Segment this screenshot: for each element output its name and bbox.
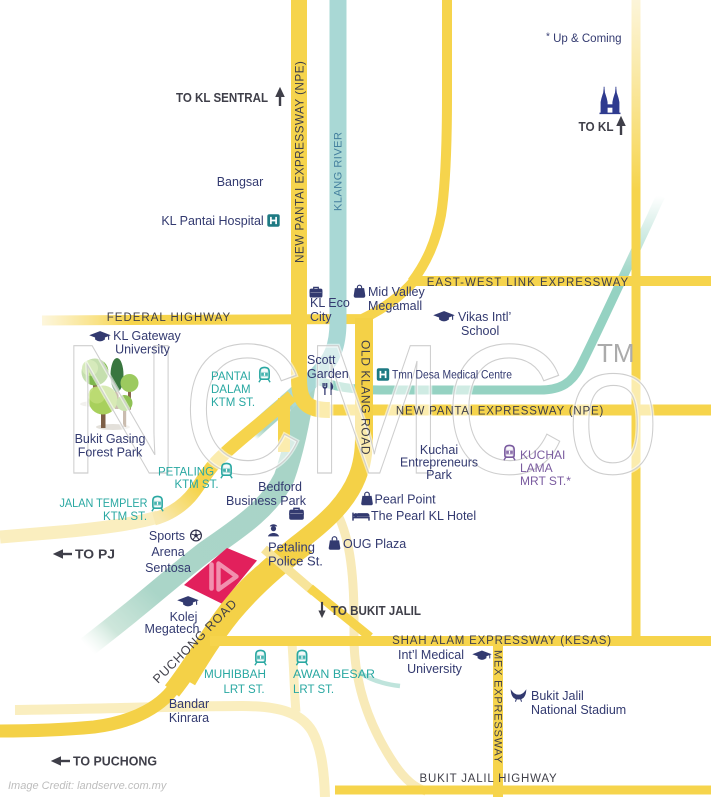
svg-text:KTM ST.: KTM ST. [103,511,147,523]
svg-text:KTM ST.: KTM ST. [174,479,218,491]
svg-text:PETALING: PETALING [158,467,214,479]
svg-text:Sports: Sports [149,529,185,543]
svg-text:KL Pantai Hospital: KL Pantai Hospital [161,214,263,228]
svg-text:Scott: Scott [307,353,336,367]
svg-text:LRT ST.: LRT ST. [293,684,334,696]
svg-text:City: City [310,310,332,324]
svg-text:KTM ST.: KTM ST. [211,397,255,409]
svg-text:TO PUCHONG: TO PUCHONG [73,755,157,769]
svg-text:MEX EXPRESSWAY: MEX EXPRESSWAY [492,650,504,764]
svg-text:Police St.: Police St. [268,554,323,569]
svg-text:Bedford: Bedford [258,480,302,494]
svg-text:Bandar: Bandar [169,697,209,711]
svg-text:Bangsar: Bangsar [217,175,264,189]
svg-text:MUHIBBAH: MUHIBBAH [204,669,266,681]
svg-text:PANTAI: PANTAI [211,371,251,383]
svg-text:Bukit Jalil: Bukit Jalil [531,689,584,703]
svg-text:TO BUKIT JALIL: TO BUKIT JALIL [331,604,421,618]
svg-text:TO PJ: TO PJ [75,548,115,562]
svg-text:DALAM: DALAM [211,384,251,396]
svg-text:OUG Plaza: OUG Plaza [343,537,406,551]
svg-text:Park: Park [426,468,452,482]
svg-text:National Stadium: National Stadium [531,703,626,717]
svg-text:FEDERAL HIGHWAY: FEDERAL HIGHWAY [107,312,231,324]
svg-text:NEW PANTAI EXPRESSWAY (NPE): NEW PANTAI EXPRESSWAY (NPE) [396,406,604,418]
svg-text:Mid Valley: Mid Valley [368,285,425,299]
svg-text:SHAH ALAM EXPRESSWAY (KESAS): SHAH ALAM EXPRESSWAY (KESAS) [392,635,612,647]
svg-text:Megamall: Megamall [368,299,422,313]
svg-text:Business Park: Business Park [226,494,307,508]
svg-text:Tmn Desa Medical Centre: Tmn Desa Medical Centre [392,368,512,382]
svg-text:MRT ST.*: MRT ST.* [520,474,571,488]
svg-text:Bukit Gasing: Bukit Gasing [75,432,146,446]
svg-text:* Up & Coming: * Up & Coming [546,32,622,46]
svg-text:KL Gateway: KL Gateway [113,329,181,343]
svg-text:JALAN TEMPLER: JALAN TEMPLER [60,498,148,510]
svg-text:TM: TM [597,338,635,368]
svg-text:OLD KLANG ROAD: OLD KLANG ROAD [359,340,373,455]
svg-text:Int’l Medical: Int’l Medical [398,648,464,662]
svg-text:Petaling: Petaling [268,540,315,555]
svg-text:Image Credit: landserve.com.my: Image Credit: landserve.com.my [8,780,168,792]
svg-text:Pearl Point: Pearl Point [375,493,437,507]
svg-text:Sentosa: Sentosa [145,561,191,575]
svg-text:Vikas Intl’: Vikas Intl’ [458,310,511,324]
svg-text:TO KL: TO KL [579,120,614,134]
svg-text:KUCHAI: KUCHAI [520,448,565,462]
svg-text:School: School [461,324,499,338]
svg-text:TO KL SENTRAL: TO KL SENTRAL [176,91,268,105]
svg-text:Garden: Garden [307,367,349,381]
svg-text:EAST-WEST LINK EXPRESSWAY: EAST-WEST LINK EXPRESSWAY [427,277,629,289]
svg-text:Kinrara: Kinrara [169,711,209,725]
svg-text:University: University [115,343,171,357]
svg-text:LAMA: LAMA [520,461,553,475]
svg-text:KL Eco: KL Eco [310,296,350,310]
svg-text:The Pearl KL Hotel: The Pearl KL Hotel [371,509,476,523]
svg-text:University: University [407,662,463,676]
svg-text:Forest Park: Forest Park [78,446,143,460]
svg-text:NEW PANTAI EXPRESSWAY (NPE): NEW PANTAI EXPRESSWAY (NPE) [293,61,307,263]
svg-text:AWAN BESAR: AWAN BESAR [293,669,375,681]
svg-text:KLANG RIVER: KLANG RIVER [333,132,345,211]
svg-text:BUKIT JALIL HIGHWAY: BUKIT JALIL HIGHWAY [420,773,558,785]
svg-text:Arena: Arena [151,545,184,559]
svg-text:LRT ST.: LRT ST. [223,684,264,696]
